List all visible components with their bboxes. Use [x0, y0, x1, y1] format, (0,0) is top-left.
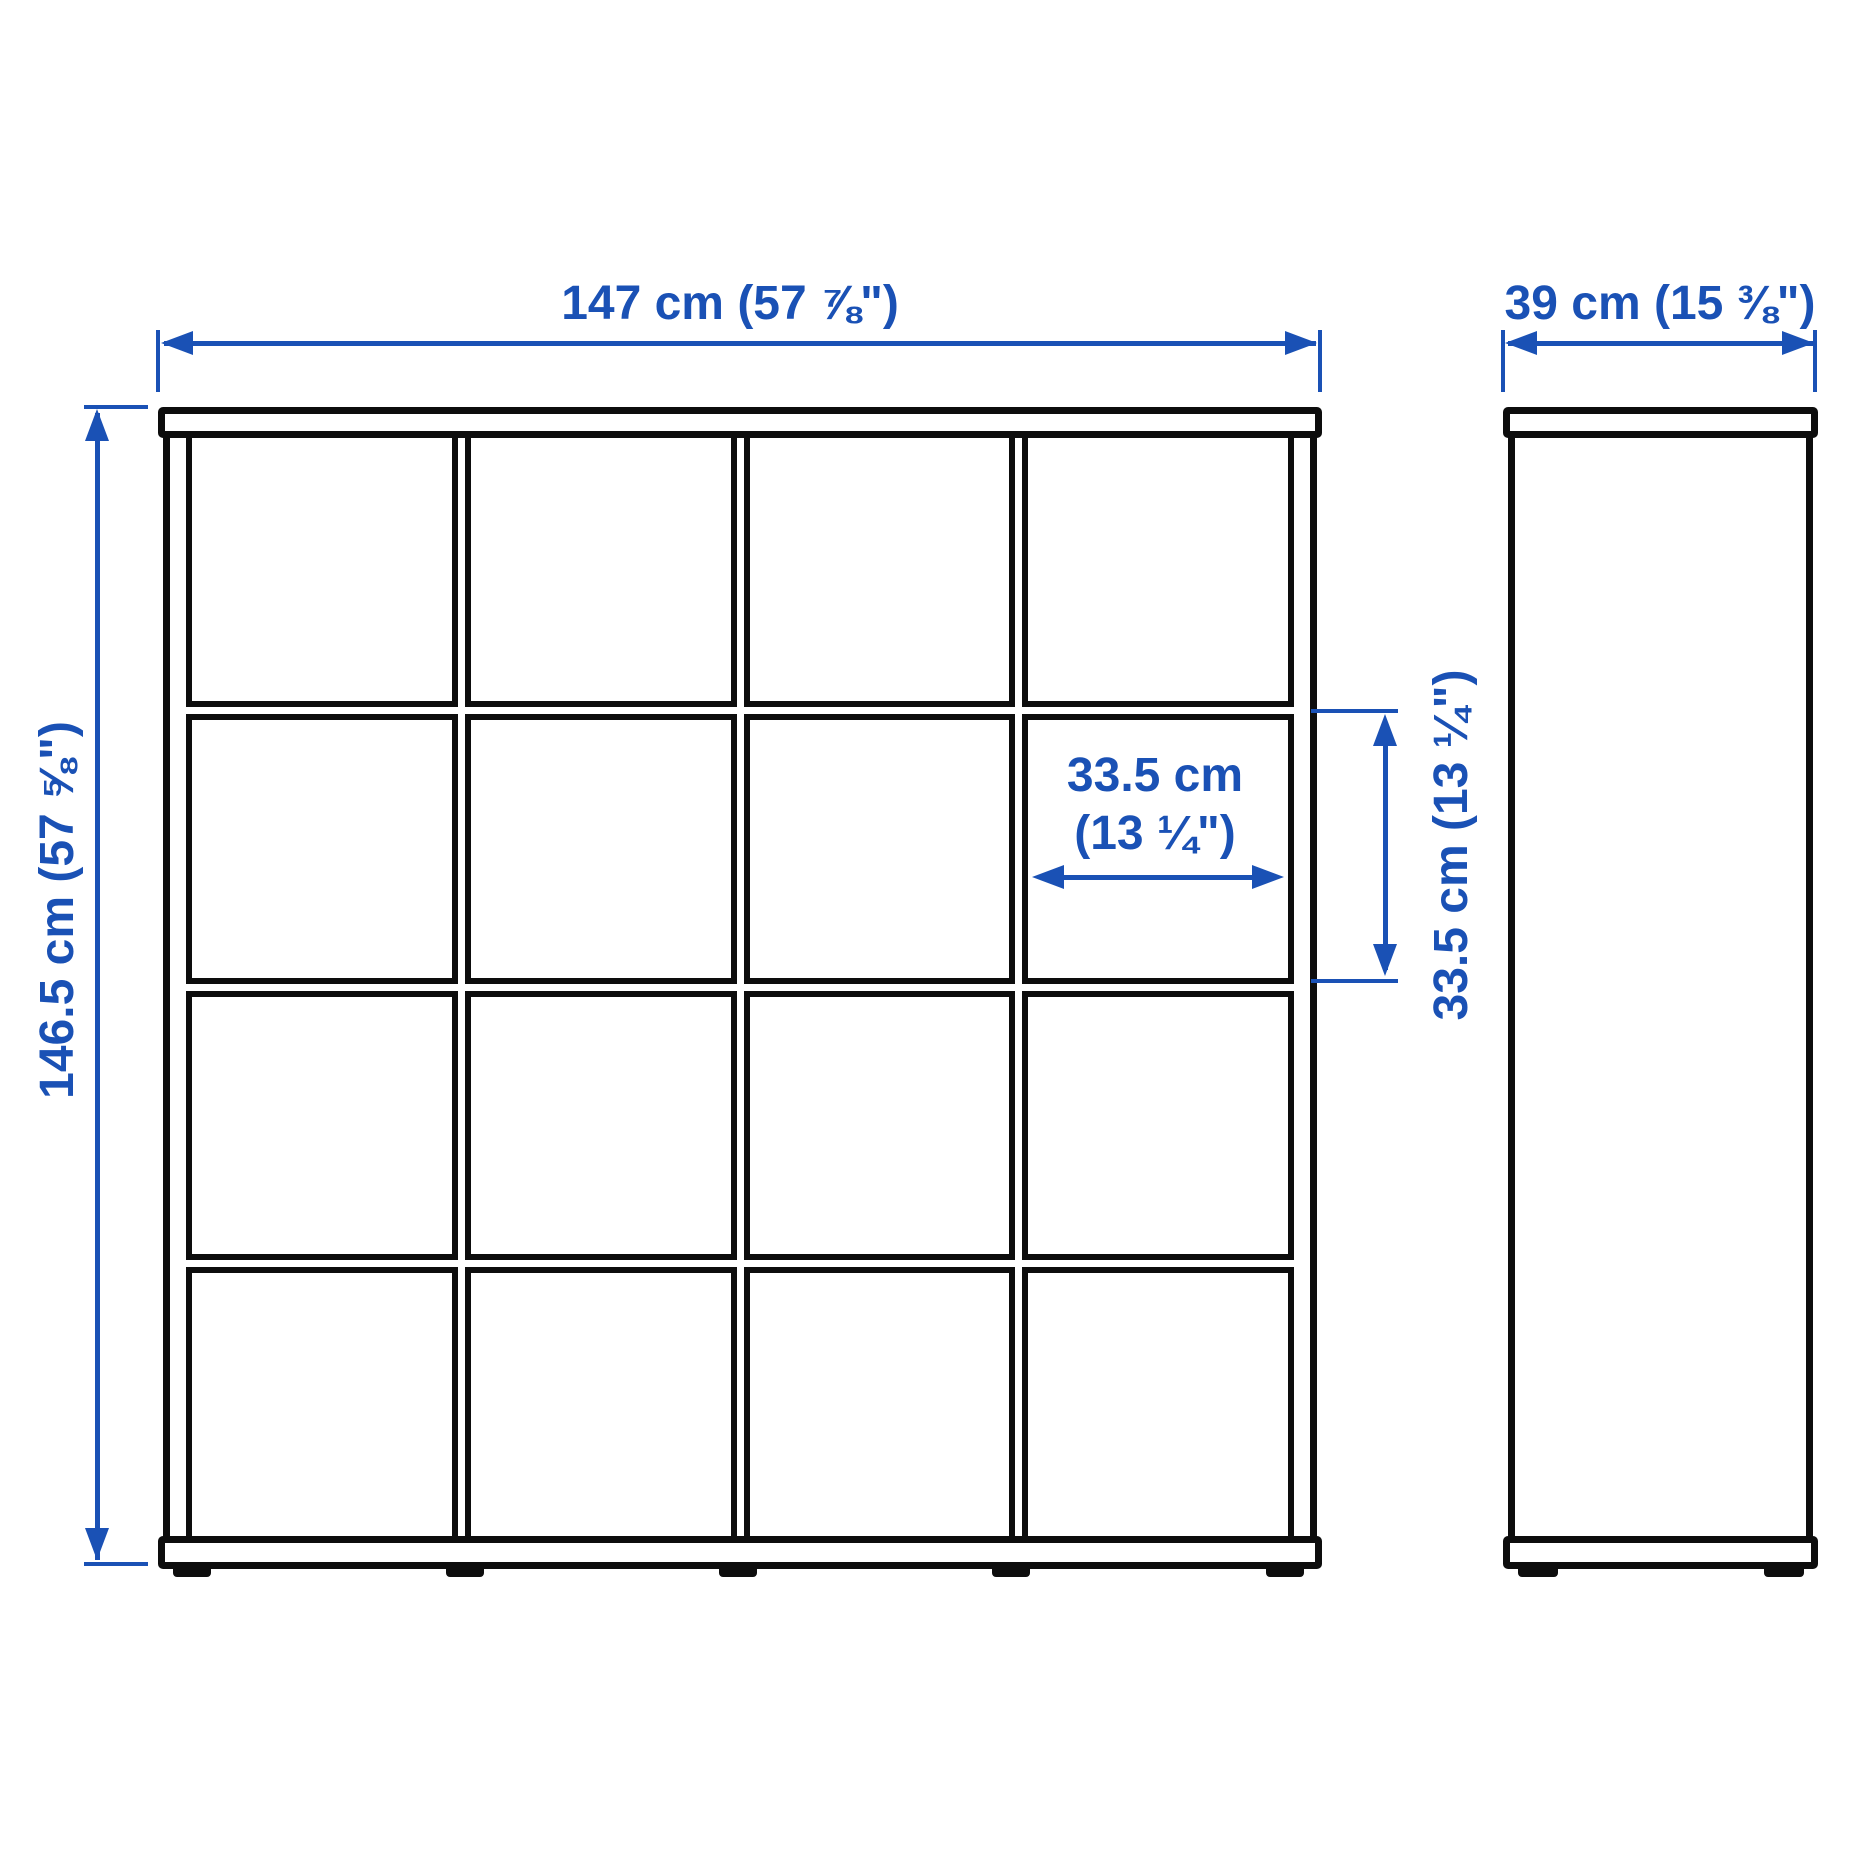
- arrowhead-left-icon: [1032, 865, 1064, 889]
- width-dim-tick-left: [156, 330, 160, 392]
- front-foot: [173, 1568, 211, 1577]
- cube-cell: [465, 438, 737, 707]
- cube-cell: [186, 1267, 458, 1536]
- width-dim-tick-right: [1318, 330, 1322, 392]
- cube-width-dim-label-line1: 33.5 cm: [955, 748, 1355, 804]
- depth-dim-label: 39 cm (15 ⅜"): [1460, 276, 1860, 332]
- cube-height-dim-tick-bottom: [1311, 979, 1398, 983]
- cube-cell: [744, 1267, 1016, 1536]
- arrowhead-right-icon: [1252, 865, 1284, 889]
- arrowhead-down-icon: [1373, 944, 1397, 976]
- side-top-panel: [1503, 407, 1818, 438]
- width-dim-label: 147 cm (57 ⅞"): [380, 276, 1080, 332]
- width-dim-line: [164, 341, 1316, 346]
- arrowhead-left-icon: [1505, 331, 1537, 355]
- cube-width-dim-label-line2: (13 ¼"): [955, 806, 1355, 862]
- cube-height-dim-line: [1383, 722, 1388, 970]
- cube-height-dim-tick-top: [1311, 709, 1398, 713]
- front-grid: [186, 438, 1294, 1536]
- front-foot: [1266, 1568, 1304, 1577]
- cube-cell: [186, 714, 458, 983]
- cube-cell: [186, 438, 458, 707]
- cube-cell: [1022, 991, 1294, 1260]
- cube-cell: [744, 438, 1016, 707]
- cube-cell: [465, 714, 737, 983]
- cube-cell: [744, 991, 1016, 1260]
- front-foot: [992, 1568, 1030, 1577]
- height-dim-tick-bottom: [84, 1562, 148, 1566]
- cube-cell: [186, 991, 458, 1260]
- arrowhead-right-icon: [1782, 331, 1814, 355]
- cube-cell: [465, 1267, 737, 1536]
- front-view-body: [163, 438, 1317, 1536]
- cube-cell: [1022, 1267, 1294, 1536]
- front-foot: [446, 1568, 484, 1577]
- height-dim-line: [95, 413, 100, 1560]
- cube-height-dim-label: 33.5 cm (13 ¼"): [1424, 595, 1480, 1095]
- side-foot: [1764, 1568, 1804, 1577]
- arrowhead-up-icon: [1373, 714, 1397, 746]
- front-bottom-panel: [158, 1536, 1322, 1569]
- height-dim-label: 146.5 cm (57 ⅝"): [30, 560, 86, 1260]
- side-view-body: [1508, 438, 1813, 1536]
- product-dimension-diagram: 147 cm (57 ⅞") 39 cm (15 ⅜") 146.5 cm (5…: [0, 0, 1860, 1860]
- front-top-panel: [158, 407, 1322, 438]
- cube-cell: [1022, 438, 1294, 707]
- arrowhead-up-icon: [85, 409, 109, 441]
- cube-cell: [465, 991, 737, 1260]
- arrowhead-down-icon: [85, 1528, 109, 1560]
- arrowhead-left-icon: [161, 331, 193, 355]
- depth-dim-line: [1508, 341, 1814, 346]
- cube-width-dim-line: [1056, 875, 1260, 880]
- side-bottom-panel: [1503, 1536, 1818, 1569]
- front-foot: [719, 1568, 757, 1577]
- arrowhead-right-icon: [1285, 331, 1317, 355]
- side-foot: [1518, 1568, 1558, 1577]
